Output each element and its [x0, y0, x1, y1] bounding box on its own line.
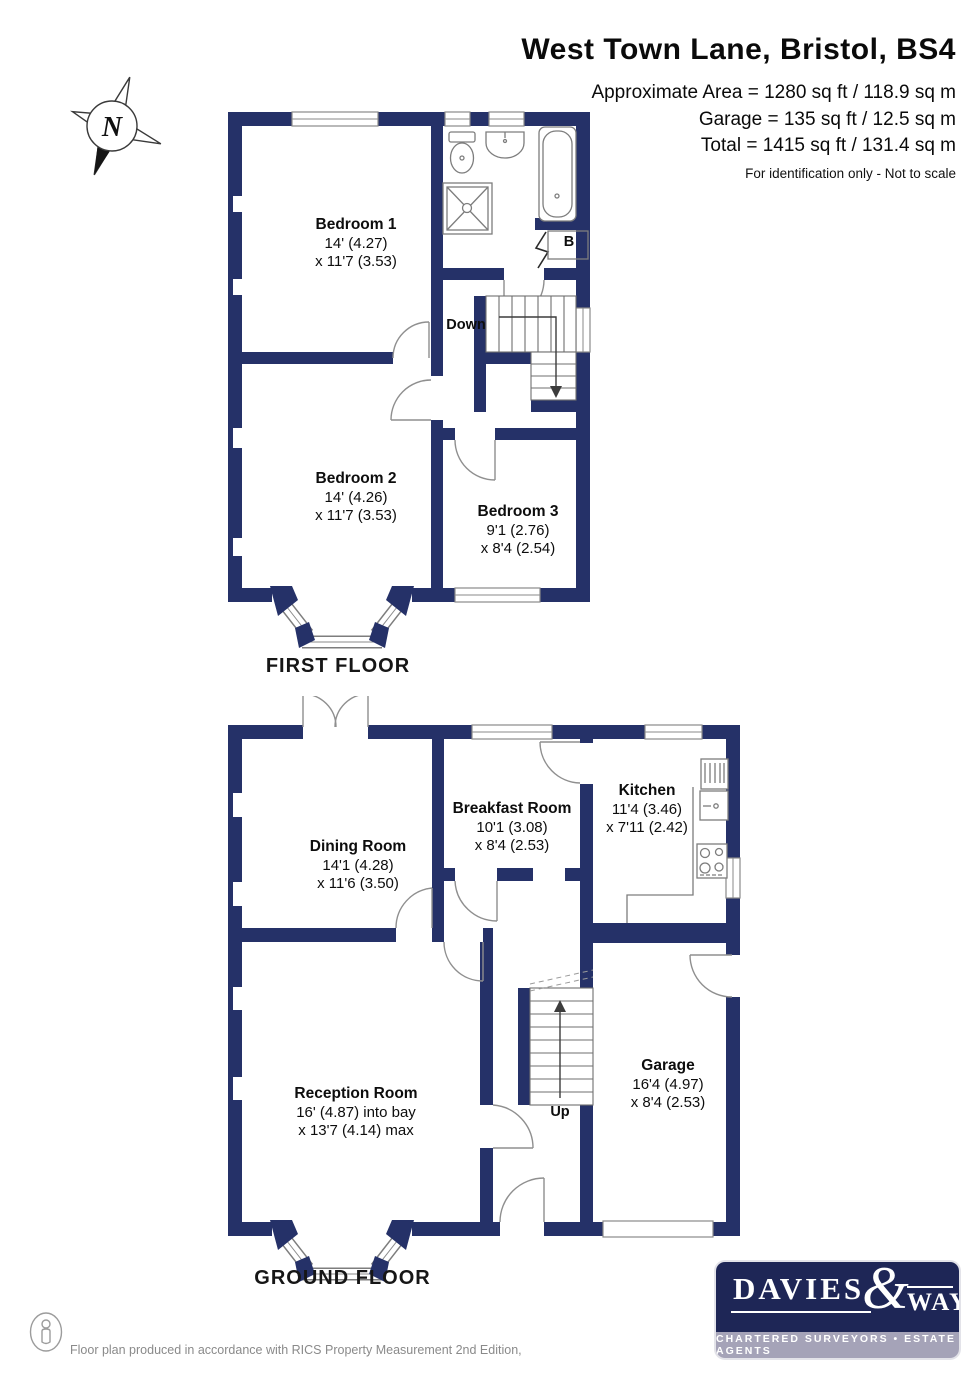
compass-icon: N: [50, 64, 174, 188]
room-label-kitchen: Kitchen 11'4 (3.46) x 7'11 (2.42): [572, 782, 722, 838]
boiler-label: B: [560, 234, 578, 250]
room-label-dining-room: Dining Room 14'1 (4.28) x 11'6 (3.50): [278, 838, 438, 894]
area-line-total: Approximate Area = 1280 sq ft / 118.9 sq…: [521, 80, 956, 107]
room-label-reception-room: Reception Room 16' (4.87) into bay x 13'…: [256, 1085, 456, 1141]
compass-north-label: N: [101, 112, 124, 143]
logo-name-way: WAY: [907, 1289, 959, 1317]
ground-floor-doors: [303, 696, 732, 1222]
davies-and-way-logo: DAVIES & WAY CHARTERED SURVEYORS • ESTAT…: [716, 1262, 959, 1358]
basin-icon: [486, 132, 524, 158]
page-title: West Town Lane, Bristol, BS4: [521, 33, 956, 67]
logo-wordmark: DAVIES & WAY: [716, 1262, 959, 1332]
shower-icon: [443, 183, 492, 234]
bath-icon: [539, 127, 576, 221]
logo-name-davies: DAVIES: [733, 1271, 864, 1307]
nichecom-person-icon: [28, 1311, 64, 1353]
first-floor-stairs: [486, 296, 576, 400]
first-floor-plan: [226, 106, 598, 686]
footer-line-1: Floor plan produced in accordance with R…: [70, 1342, 647, 1359]
logo-ampersand: &: [862, 1262, 909, 1323]
room-label-garage: Garage 16'4 (4.97) x 8'4 (2.53): [593, 1057, 743, 1113]
stairs-up-label: Up: [536, 1104, 584, 1120]
hob-icon: [697, 844, 727, 878]
floorplan-page: N West Town Lane, Bristol, BS4 Approxima…: [0, 0, 980, 1385]
first-floor-title: FIRST FLOOR: [238, 655, 438, 678]
logo-rule-over-way: [907, 1286, 953, 1288]
ground-floor-stairs: [530, 970, 593, 1105]
footer: Floor plan produced in accordance with R…: [70, 1309, 647, 1385]
first-floor-bay-window: [270, 586, 414, 648]
room-label-bedroom-2: Bedroom 2 14' (4.26) x 11'7 (3.53): [276, 470, 436, 526]
logo-rule-under-davies: [731, 1311, 871, 1313]
room-label-bedroom-1: Bedroom 1 14' (4.27) x 11'7 (3.53): [276, 216, 436, 272]
room-label-bedroom-3: Bedroom 3 9'1 (2.76) x 8'4 (2.54): [443, 503, 593, 559]
toilet-icon: [449, 132, 475, 173]
stairs-down-label: Down: [436, 317, 496, 333]
garage-door: [603, 1221, 713, 1237]
room-label-breakfast-room: Breakfast Room 10'1 (3.08) x 8'4 (2.53): [432, 800, 592, 856]
logo-tagline: CHARTERED SURVEYORS • ESTATE AGENTS: [716, 1332, 959, 1358]
ground-floor-title: GROUND FLOOR: [240, 1267, 445, 1290]
bathroom-fixtures: [443, 127, 576, 234]
